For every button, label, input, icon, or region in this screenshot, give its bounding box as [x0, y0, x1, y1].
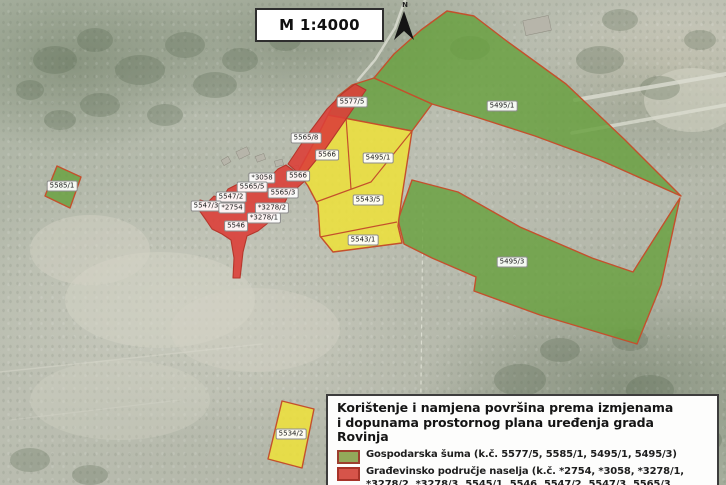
parcel-label: 5495/1 [363, 153, 394, 164]
north-arrow: N [388, 1, 422, 45]
parcel-label: 5577/5 [337, 97, 368, 108]
parcel-label: 5495/1 [487, 101, 518, 112]
parcel-label: 5495/3 [497, 257, 528, 268]
parcel-label: *2754 [218, 203, 245, 214]
parcel-label: 5566 [286, 171, 310, 182]
parcel-label: 5565/8 [291, 133, 322, 144]
parcel-label: 5543/1 [348, 235, 379, 246]
parcel-label: *3278/1 [247, 213, 281, 224]
scale-label: M 1:4000 [279, 16, 360, 34]
legend-label: Građevinsko područje naselja (k.č. *2754… [366, 466, 709, 485]
legend-title: Korištenje i namjena površina prema izmj… [337, 401, 677, 445]
legend-panel: Korištenje i namjena površina prema izmj… [326, 394, 719, 485]
parcel-label: 5534/2 [276, 429, 307, 440]
scale-box: M 1:4000 [255, 8, 384, 42]
legend-swatch [337, 467, 360, 481]
legend-item: Gospodarska šuma (k.č. 5577/5, 5585/1, 5… [337, 449, 709, 464]
parcel-label: 5543/5 [353, 195, 384, 206]
parcel-label: 5565/3 [268, 188, 299, 199]
map-document: 5577/55565/855665495/15495/15585/1*30585… [0, 0, 726, 485]
legend-items: Gospodarska šuma (k.č. 5577/5, 5585/1, 5… [337, 449, 709, 485]
parcel-label: 5566 [315, 150, 339, 161]
legend-swatch [337, 450, 360, 464]
north-label: N [402, 1, 408, 9]
parcel-label: 5547/3 [191, 201, 222, 212]
parcel-label: 5585/1 [47, 181, 78, 192]
parcel-label: 5546 [224, 221, 248, 232]
legend-label: Gospodarska šuma (k.č. 5577/5, 5585/1, 5… [366, 449, 677, 464]
legend-item: Građevinsko područje naselja (k.č. *2754… [337, 466, 709, 485]
parcel-5495-3-forest [398, 180, 680, 344]
